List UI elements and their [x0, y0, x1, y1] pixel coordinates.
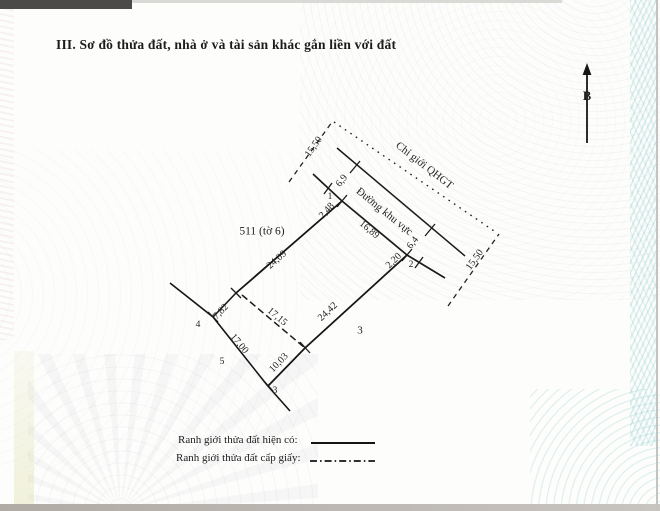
- dim-qhgt-width-top: 15,50: [303, 135, 325, 160]
- dimension-labels: 15,50 6,9 2,48 16,89 6,4 2,20 15,50 24,0…: [211, 135, 486, 375]
- vertex-4: 4: [196, 320, 201, 330]
- dim-road-width-top: 6,9: [334, 173, 350, 190]
- dim-corner2-offset: 2,20: [384, 251, 404, 271]
- legend-existing-label: Ranh giới thửa đất hiện có:: [178, 434, 298, 447]
- tick: [415, 257, 423, 268]
- north-label: B: [583, 89, 591, 103]
- certificate-page: III. Sơ đồ thửa đất, nhà ở và tài sản kh…: [0, 0, 660, 511]
- road-near-edge: [313, 174, 445, 278]
- north-arrow-head-icon: [583, 63, 592, 75]
- tick: [402, 249, 412, 261]
- vertex-labels: 1 2 3 4 5: [196, 192, 414, 396]
- tick-marks: [208, 161, 435, 391]
- dim-bottom-edge: 10,03: [267, 351, 291, 375]
- road-far-edge: [337, 148, 465, 256]
- parcel-right-edge: [268, 255, 407, 386]
- granted-boundary-dashed: [242, 295, 305, 348]
- parcel-sketch: B: [0, 0, 660, 511]
- dim-outer-edge: 17,00: [228, 332, 251, 356]
- vertex-3: 3: [273, 386, 278, 396]
- legend-granted-label: Ranh giới thửa đất cấp giấy:: [176, 452, 301, 465]
- vertex-5: 5: [220, 357, 225, 367]
- north-arrow: [583, 63, 592, 143]
- dim-left-edge: 24,09: [265, 248, 289, 271]
- lot-number-label: 3: [357, 325, 363, 337]
- vertex-2: 2: [409, 260, 414, 270]
- planning-boundary-label: Chỉ giới QHGT: [393, 140, 455, 192]
- dim-front-edge: 16,89: [357, 218, 381, 241]
- parcel-id-label: 511 (tờ 6): [239, 226, 284, 238]
- dim-corner1-offset: 2,48: [317, 201, 337, 221]
- legend-swatches: [310, 443, 375, 461]
- qhgt-long-dotted: [334, 122, 497, 233]
- dim-qhgt-width-bottom: 15,50: [464, 248, 486, 273]
